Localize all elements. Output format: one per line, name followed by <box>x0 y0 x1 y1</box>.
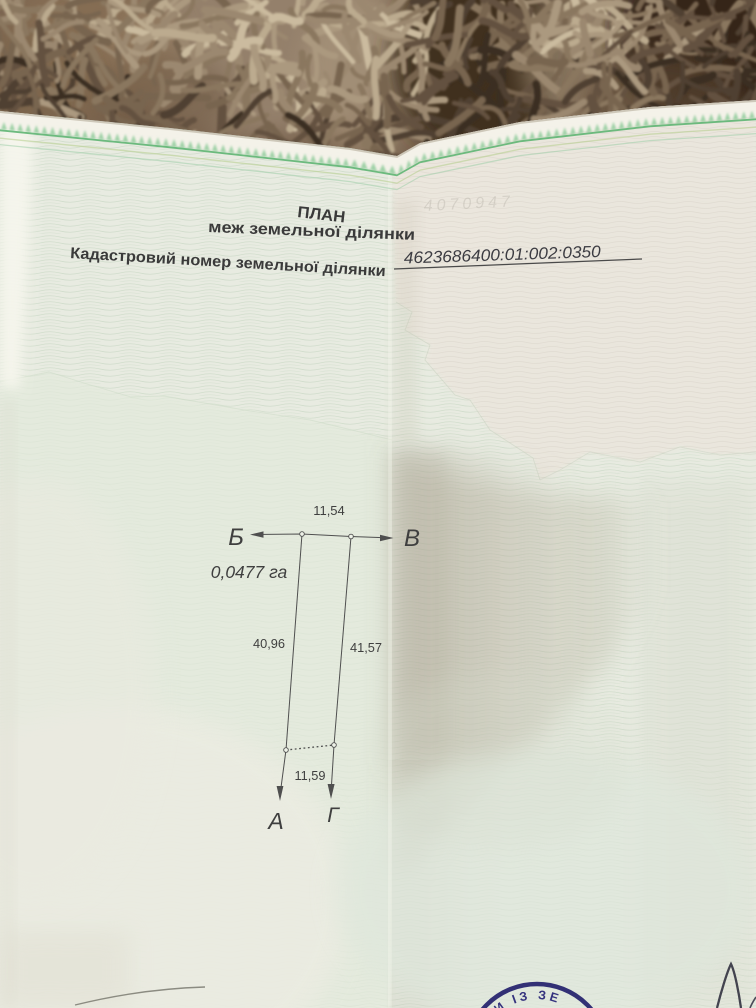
svg-text:41,57: 41,57 <box>350 640 382 655</box>
svg-text:11,54: 11,54 <box>313 503 345 518</box>
svg-text:Б: Б <box>228 524 244 551</box>
svg-text:А: А <box>266 808 283 834</box>
svg-text:0,0477 га: 0,0477 га <box>211 562 288 582</box>
svg-text:В: В <box>404 525 420 552</box>
svg-text:11,59: 11,59 <box>294 768 325 783</box>
svg-text:40,96: 40,96 <box>253 636 285 651</box>
svg-text:Г: Г <box>327 804 340 827</box>
